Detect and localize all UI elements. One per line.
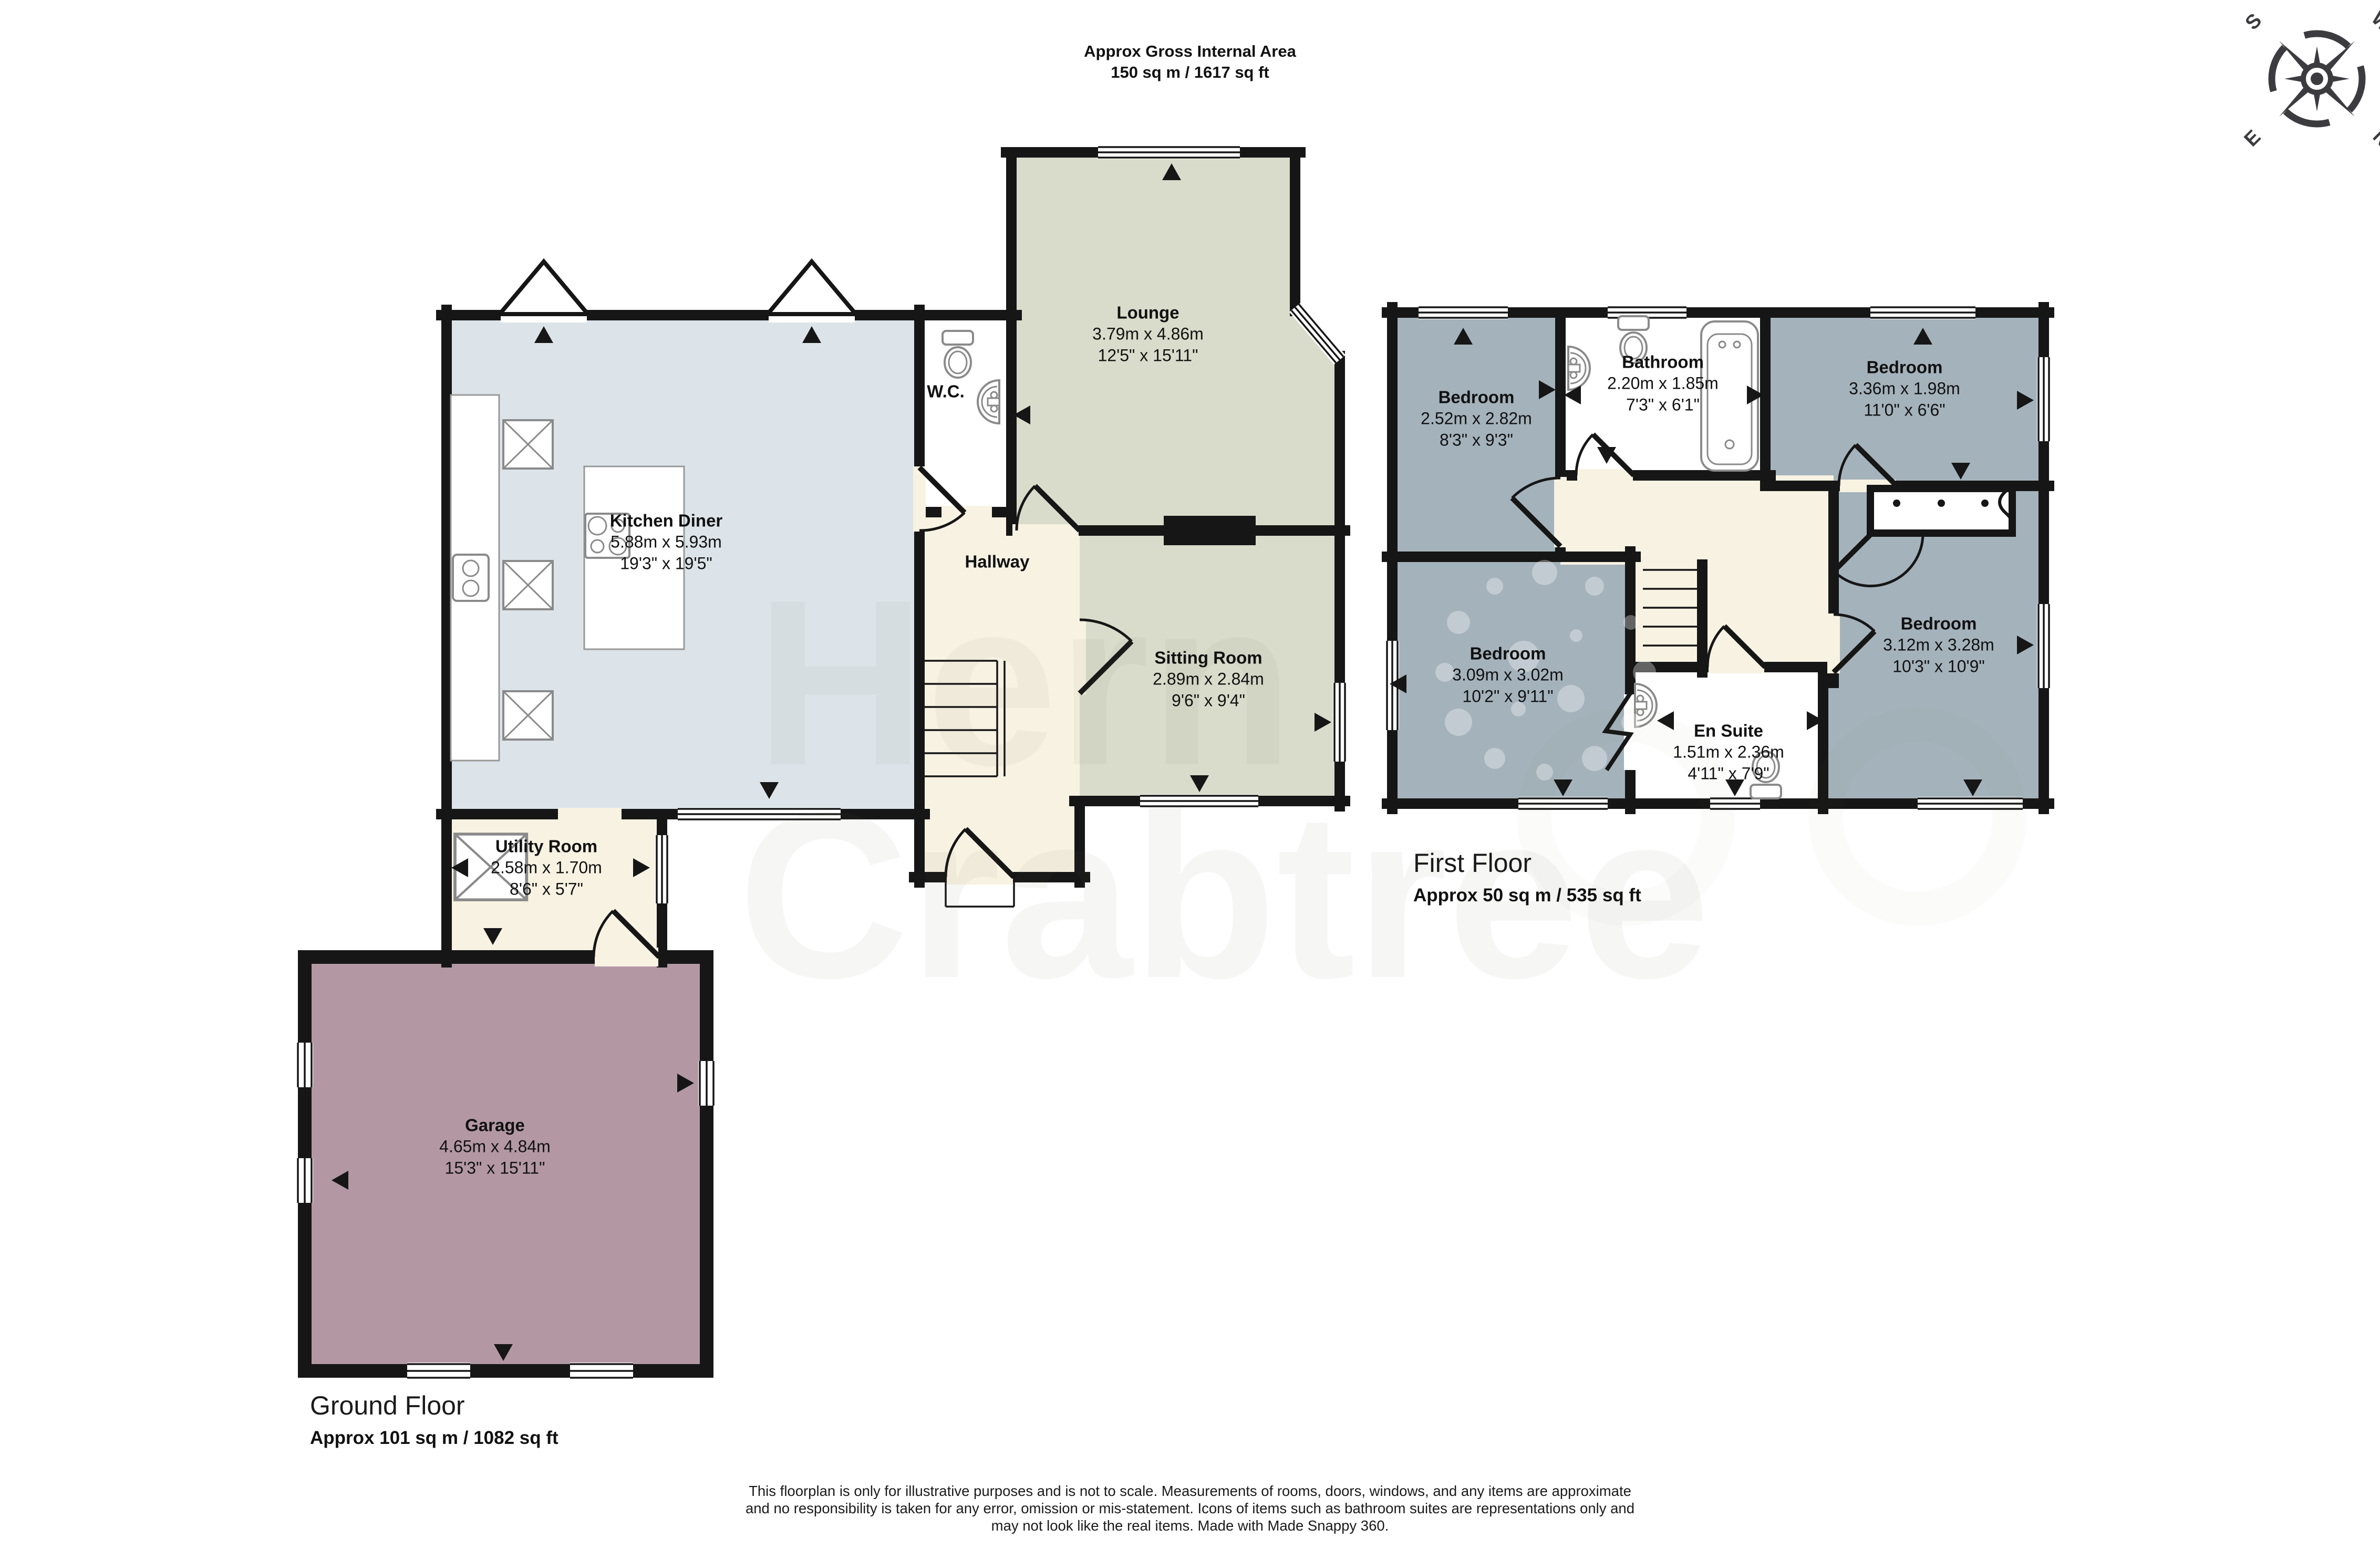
appliance-icon [503,691,553,740]
header-title: Approx Gross Internal Area [1084,41,1296,62]
label-bedroom-bottom-right: Bedroom 3.12m x 3.28m 10'3" x 10'9" [1883,613,1994,678]
header-subtitle: 150 sq m / 1617 sq ft [1084,62,1296,83]
room-name: Garage [439,1115,551,1136]
toilet-icon [943,331,973,378]
label-kitchen: Kitchen Diner 5.88m x 5.93m 19'3" x 19'5… [610,510,723,575]
label-wc: W.C. [927,381,965,402]
room-metric: 4.65m x 4.84m [439,1136,551,1158]
fireplace [1164,516,1256,545]
floor-name: First Floor [1413,847,1641,879]
room-imperial: 19'3" x 19'5" [610,553,723,575]
disclaimer-line2: and no responsibility is taken for any e… [0,1500,2380,1517]
label-ensuite: En Suite 1.51m x 2.36m 4'11" x 7'9" [1673,720,1784,785]
floor-area: Approx 50 sq m / 535 sq ft [1413,883,1641,908]
gross-internal-area-header: Approx Gross Internal Area 150 sq m / 16… [1084,41,1296,83]
disclaimer-line3: may not look like the real items. Made w… [0,1517,2380,1534]
room-name: Bathroom [1607,351,1719,373]
room-metric: 2.58m x 1.70m [491,857,602,879]
floor-area: Approx 101 sq m / 1082 sq ft [310,1426,558,1450]
room-name: En Suite [1673,720,1784,742]
appliance-icon [503,420,553,469]
label-lounge: Lounge 3.79m x 4.86m 12'5" x 15'11" [1092,302,1204,367]
room-name: W.C. [927,381,965,402]
room-metric: 1.51m x 2.36m [1673,742,1784,763]
room-imperial: 9'6" x 9'4" [1153,690,1264,712]
kitchen-sink-icon [453,555,489,601]
label-sitting-room: Sitting Room 2.89m x 2.84m 9'6" x 9'4" [1153,647,1264,712]
room-metric: 3.79m x 4.86m [1092,324,1204,345]
label-bedroom-bottom-left: Bedroom 3.09m x 3.02m 10'2" x 9'11" [1452,643,1564,708]
label-utility: Utility Room 2.58m x 1.70m 8'6" x 5'7" [491,836,602,900]
ground-floor-caption: Ground Floor Approx 101 sq m / 1082 sq f… [310,1389,558,1450]
room-imperial: 12'5" x 15'11" [1092,345,1204,367]
label-bedroom-top-right: Bedroom 3.36m x 1.98m 11'0" x 6'6" [1849,357,1960,421]
room-metric: 3.09m x 3.02m [1452,664,1564,686]
room-name: Bedroom [1452,643,1564,664]
wardrobe [1870,488,2012,535]
room-metric: 2.52m x 2.82m [1421,408,1532,430]
room-metric: 3.12m x 3.28m [1883,635,1994,656]
room-imperial: 8'6" x 5'7" [491,879,602,900]
landing-corridor-floor [1630,557,1834,668]
compass-icon: S W E N [2240,7,2380,151]
room-name: Bedroom [1883,613,1994,635]
floorplan-page: S W E N Hern Crabtree Approx Gross Inter… [0,0,2380,1560]
room-imperial: 15'3" x 15'11" [439,1158,551,1179]
room-metric: 5.88m x 5.93m [610,532,723,553]
room-metric: 2.20m x 1.85m [1607,373,1719,394]
disclaimer-line1: This floorplan is only for illustrative … [0,1482,2380,1500]
room-name: Bedroom [1849,357,1960,378]
label-bedroom-front: Bedroom 2.52m x 2.82m 8'3" x 9'3" [1421,387,1532,451]
compass-south: S [2241,9,2267,35]
room-imperial: 10'2" x 9'11" [1452,686,1564,708]
room-imperial: 7'3" x 6'1" [1607,394,1719,416]
room-name: Hallway [965,551,1030,573]
room-name: Bedroom [1421,387,1532,408]
compass-east: E [2240,126,2265,151]
first-floor-caption: First Floor Approx 50 sq m / 535 sq ft [1413,847,1641,908]
label-bathroom: Bathroom 2.20m x 1.85m 7'3" x 6'1" [1607,351,1719,416]
room-imperial: 4'11" x 7'9" [1673,763,1784,785]
room-name: Sitting Room [1153,647,1264,669]
room-metric: 2.89m x 2.84m [1153,669,1264,690]
room-imperial: 11'0" x 6'6" [1849,400,1960,421]
floorplan-drawing: S W E N Hern Crabtree [0,0,2380,1560]
room-name: Lounge [1092,302,1204,324]
appliance-icon [503,561,553,609]
compass-west: W [2367,7,2380,36]
compass-north: N [2368,126,2380,151]
label-garage: Garage 4.65m x 4.84m 15'3" x 15'11" [439,1115,551,1179]
room-imperial: 10'3" x 10'9" [1883,656,1994,678]
room-metric: 3.36m x 1.98m [1849,378,1960,400]
label-hallway: Hallway [965,551,1030,573]
floor-name: Ground Floor [310,1389,558,1422]
room-name: Utility Room [491,836,602,857]
room-imperial: 8'3" x 9'3" [1421,430,1532,451]
room-name: Kitchen Diner [610,510,723,532]
